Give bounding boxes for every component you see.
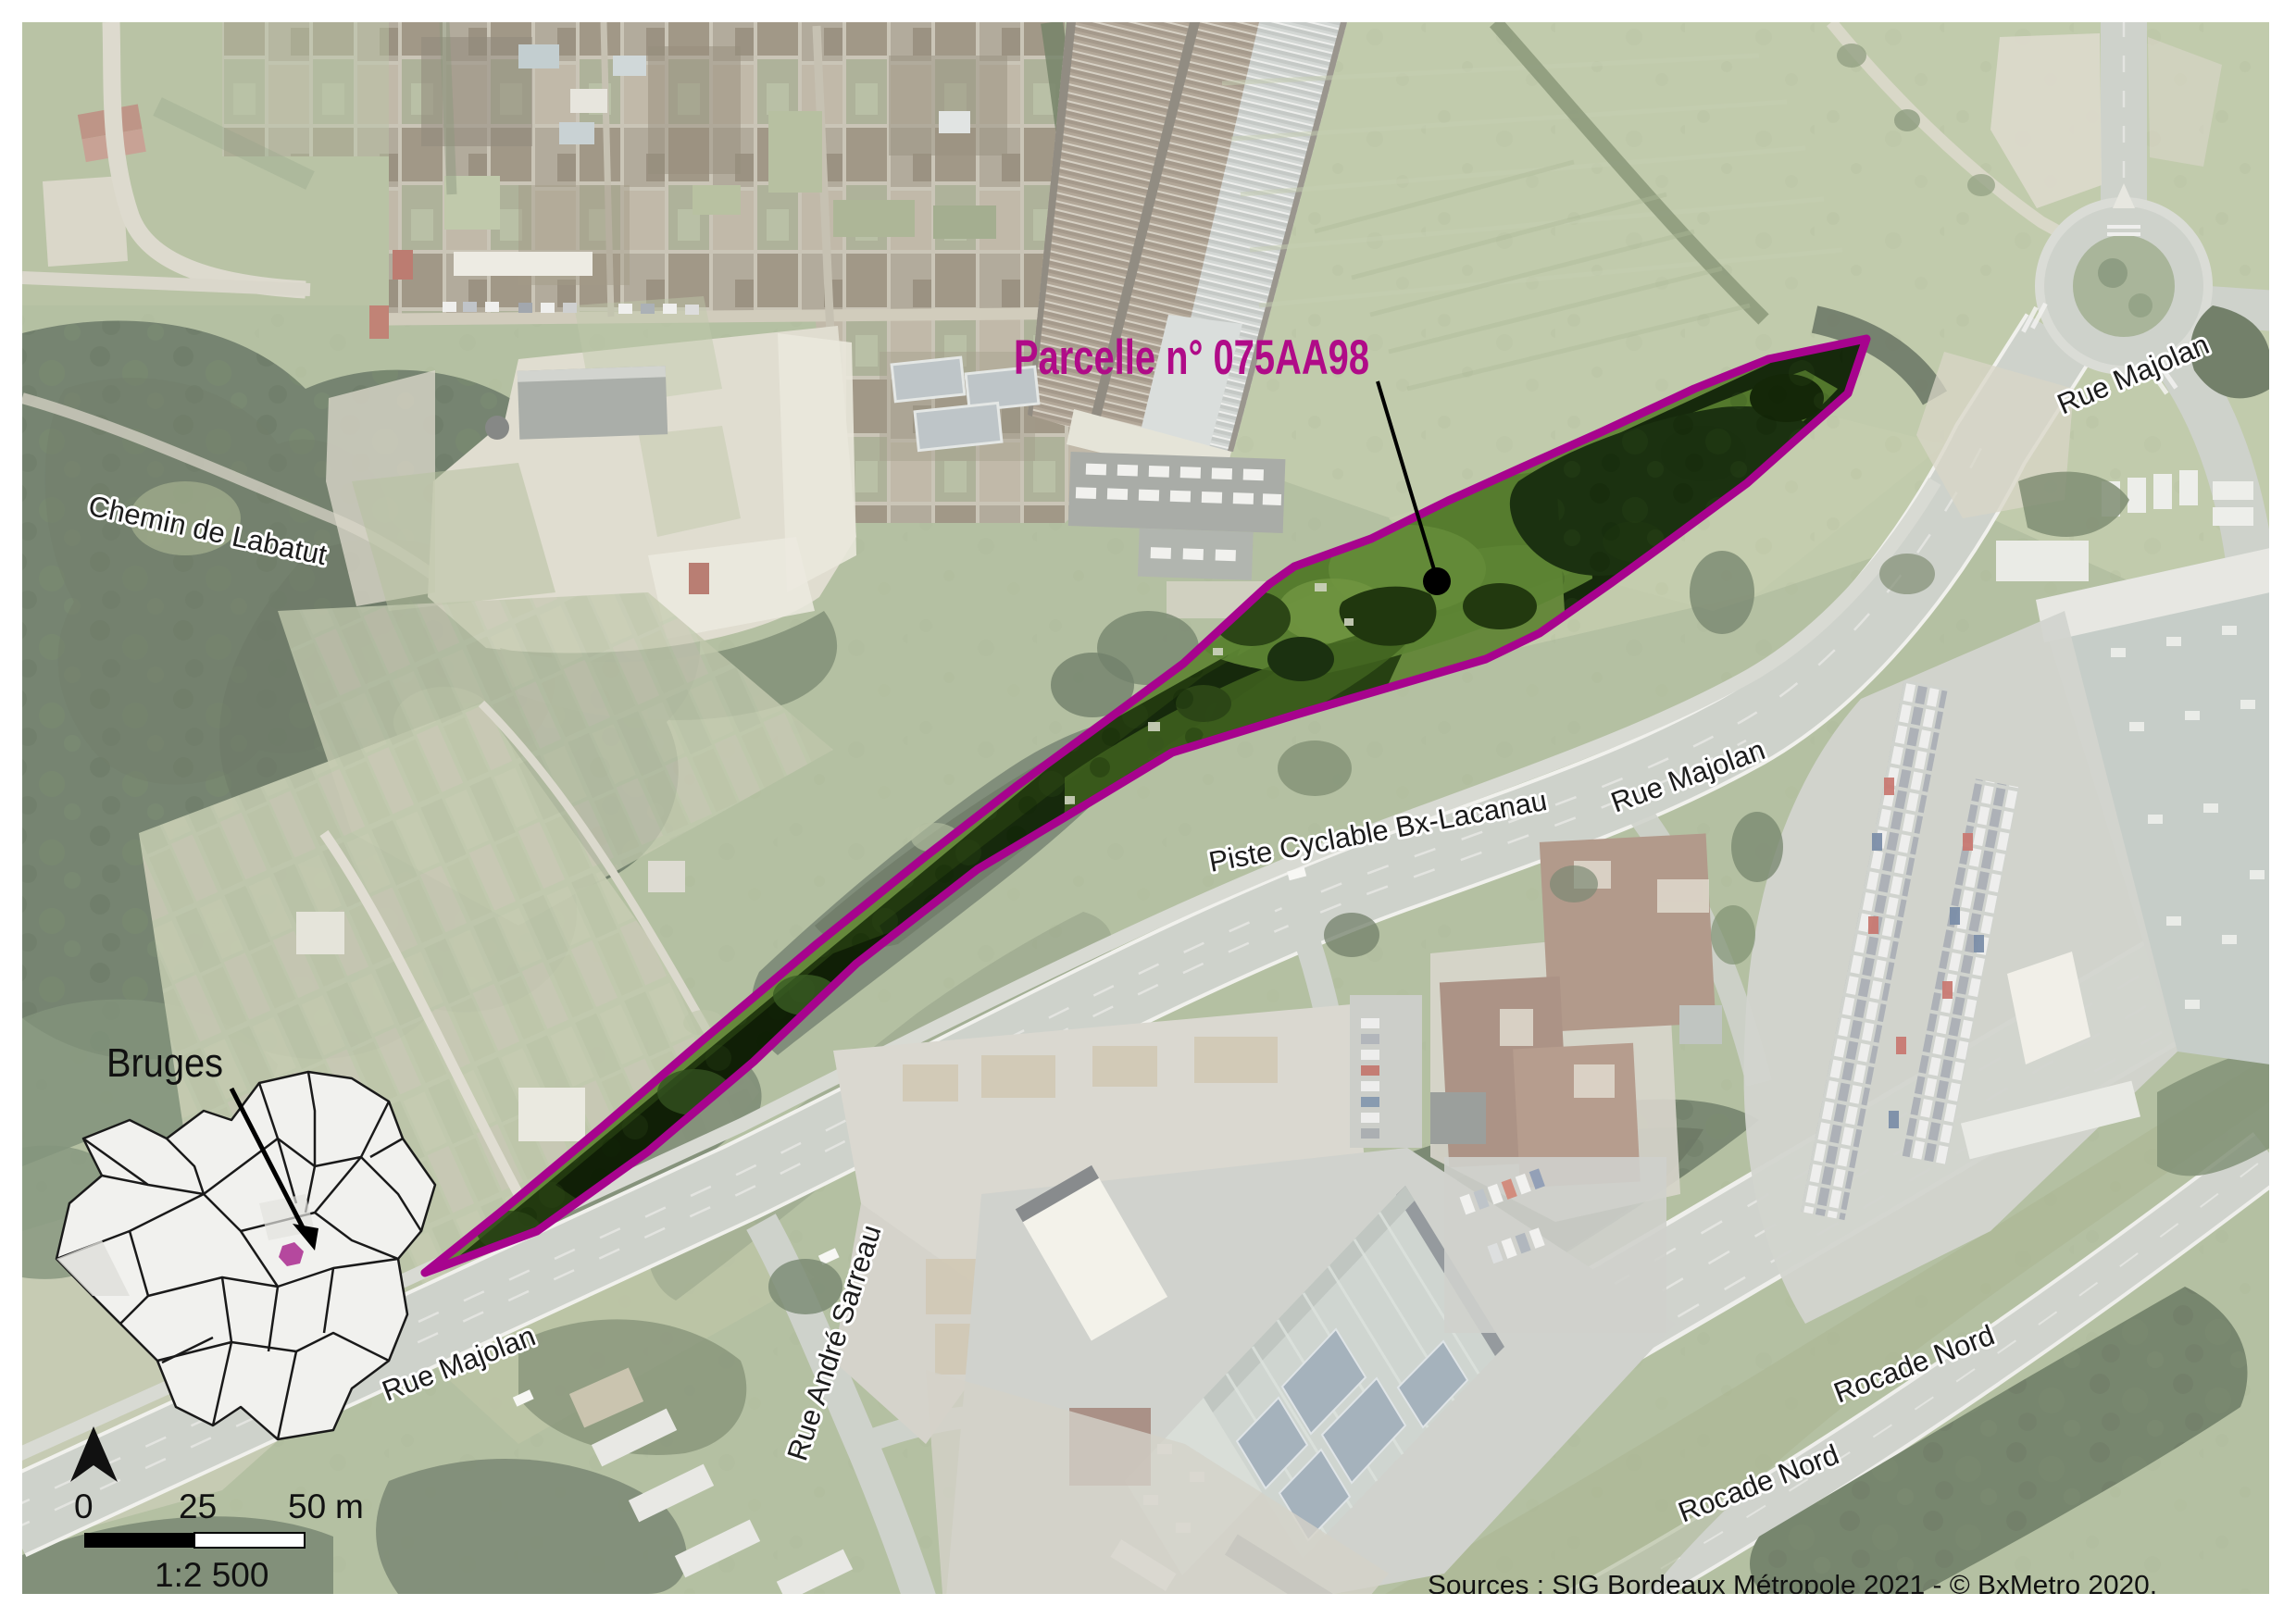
svg-text:50: 50	[288, 1487, 326, 1525]
svg-text:Bruges: Bruges	[106, 1040, 223, 1086]
svg-text:1:2 500: 1:2 500	[155, 1556, 268, 1594]
svg-text:0: 0	[74, 1487, 94, 1525]
svg-text:Parcelle n° 075AA98: Parcelle n° 075AA98	[1014, 330, 1369, 385]
svg-text:m: m	[335, 1487, 364, 1525]
svg-text:25: 25	[179, 1487, 217, 1525]
